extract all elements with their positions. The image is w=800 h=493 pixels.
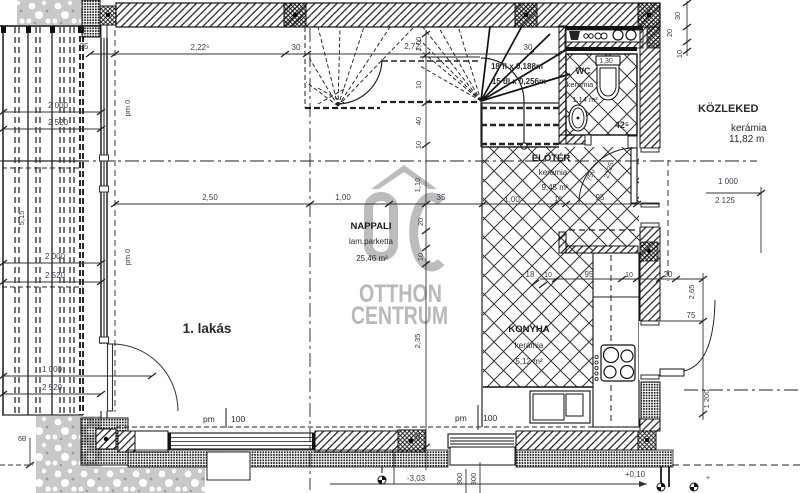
svg-text:25,46 m²: 25,46 m² [356,254,388,263]
svg-text:pm 0: pm 0 [123,100,132,117]
svg-text:5,15: 5,15 [17,211,26,226]
svg-text:20: 20 [664,270,673,279]
svg-text:10: 10 [414,141,423,149]
svg-text:-3,03: -3,03 [407,474,426,483]
svg-text:1,30: 1,30 [599,58,613,65]
svg-text:+0,10: +0,10 [625,470,646,479]
svg-text:2 520: 2 520 [42,383,63,392]
svg-text:11,82 m: 11,82 m [729,134,764,145]
svg-text:KÖZLEKED: KÖZLEKED [698,102,759,115]
svg-text:kerámia: kerámia [539,168,568,177]
svg-text:1,14 m²: 1,14 m² [572,95,598,104]
svg-text:1 000: 1 000 [718,177,739,186]
svg-text:2,50: 2,50 [202,193,218,202]
svg-text:2 520: 2 520 [48,118,69,127]
svg-text:9,45 m²: 9,45 m² [541,183,568,192]
svg-text:1,00: 1,00 [414,37,423,52]
svg-text:30: 30 [292,43,301,52]
svg-text:10: 10 [414,81,423,89]
svg-text:25: 25 [80,42,89,51]
svg-text:NAPPALI: NAPPALI [351,221,392,232]
svg-text:10: 10 [625,272,633,279]
svg-text:20: 20 [665,29,674,37]
svg-text:2 520: 2 520 [45,271,66,280]
svg-text:95: 95 [585,270,594,279]
svg-text:75: 75 [687,311,696,320]
svg-text:2 125: 2 125 [715,196,736,205]
svg-text:300: 300 [455,473,464,486]
svg-text:6B: 6B [18,436,27,443]
svg-text:KONYHA: KONYHA [508,324,549,335]
svg-text:35: 35 [437,193,446,202]
svg-text:30: 30 [524,43,533,52]
svg-text:10: 10 [554,196,562,203]
svg-text:+: + [706,475,710,482]
svg-text:1 200: 1 200 [702,390,711,409]
svg-text:kerámia: kerámia [515,341,544,350]
svg-text:20: 20 [416,218,425,226]
svg-text:5,12 m²: 5,12 m² [515,357,542,366]
svg-text:2 000: 2 000 [45,252,66,261]
svg-text:1,10: 1,10 [413,178,422,193]
svg-text:15 dl x 0,256m: 15 dl x 0,256m [492,77,546,86]
svg-text:kerámia: kerámia [731,123,767,134]
svg-text:35: 35 [413,433,422,441]
svg-text:18 fl x 0,188m: 18 fl x 0,188m [491,62,543,71]
svg-text:1,00: 1,00 [335,193,351,202]
svg-text:2,65: 2,65 [687,285,696,300]
svg-text:2,22⁵: 2,22⁵ [191,43,210,52]
svg-text:10: 10 [544,272,552,279]
svg-text:30: 30 [647,43,655,50]
svg-text:1. lakás: 1. lakás [183,321,232,336]
svg-text:lam.parketta: lam.parketta [349,237,394,246]
svg-text:2,35: 2,35 [413,334,422,349]
svg-text:42⁵: 42⁵ [615,120,629,130]
svg-text:10: 10 [675,50,684,58]
svg-text:30: 30 [673,12,682,20]
svg-text:1 000: 1 000 [42,365,63,374]
svg-text:300: 300 [469,473,478,486]
svg-text:100: 100 [483,413,497,423]
svg-text:40: 40 [414,117,423,125]
svg-text:WC: WC [576,66,591,76]
svg-text:CENTRUM: CENTRUM [351,302,448,330]
svg-text:ELŐTÉR: ELŐTÉR [532,152,571,164]
svg-text:100: 100 [231,414,245,424]
svg-text:18: 18 [526,270,535,279]
svg-text:pm: pm [203,414,215,424]
svg-text:pm 0: pm 0 [123,249,132,266]
svg-text:95: 95 [596,193,605,202]
svg-text:pm: pm [455,413,467,423]
svg-text:1,00: 1,00 [504,195,520,204]
svg-text:10: 10 [416,253,425,261]
svg-text:kerámia: kerámia [567,80,595,89]
svg-text:2 000: 2 000 [48,101,69,110]
